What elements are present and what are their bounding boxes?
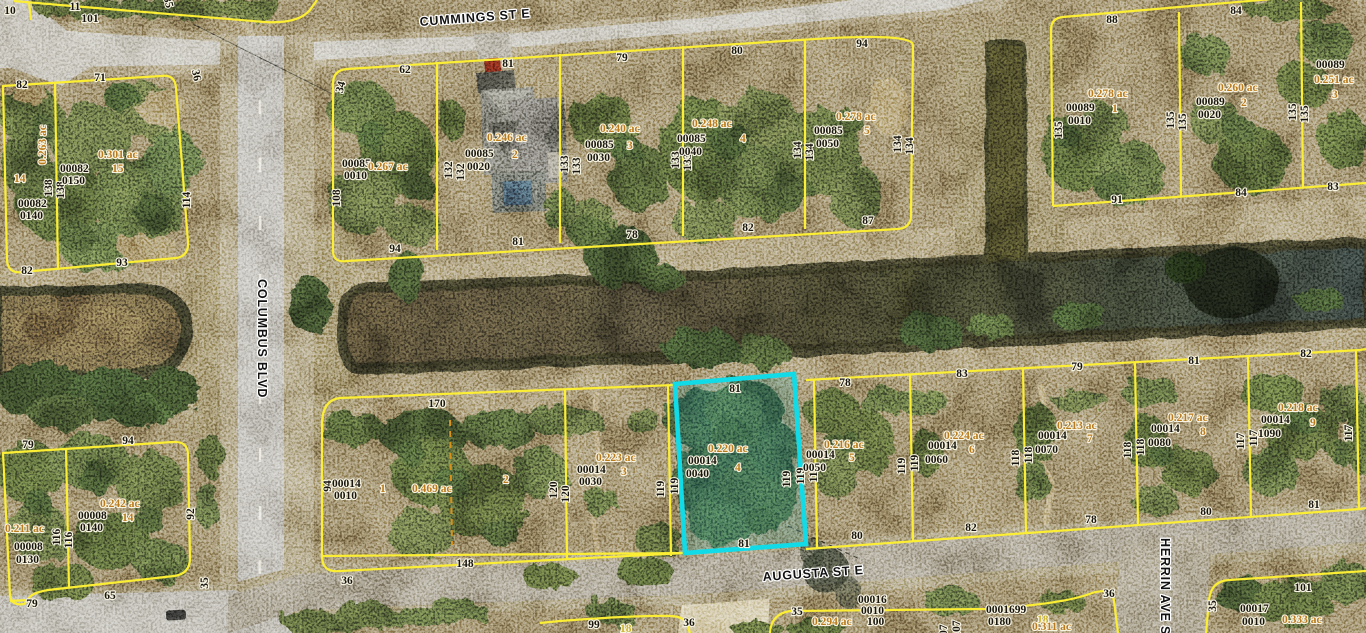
svg-text:82: 82 [16, 79, 28, 91]
svg-text:3: 3 [1332, 89, 1338, 101]
svg-text:78: 78 [626, 229, 638, 241]
svg-text:0150: 0150 [62, 175, 85, 187]
svg-text:36: 36 [341, 575, 353, 587]
svg-text:83: 83 [1327, 181, 1339, 193]
svg-text:15: 15 [112, 163, 124, 175]
svg-text:0.311 ac: 0.311 ac [1032, 621, 1071, 633]
svg-text:135: 135 [1053, 121, 1065, 139]
svg-text:6: 6 [969, 444, 975, 456]
svg-text:87: 87 [862, 215, 874, 227]
svg-text:81: 81 [1308, 499, 1320, 511]
svg-text:101: 101 [81, 13, 99, 25]
svg-text:00014: 00014 [806, 449, 835, 461]
svg-text:00089: 00089 [1316, 59, 1345, 71]
svg-text:118: 118 [1135, 438, 1147, 455]
svg-text:81: 81 [502, 58, 514, 70]
svg-text:36: 36 [683, 617, 695, 629]
svg-text:5: 5 [864, 125, 870, 137]
svg-text:4: 4 [735, 462, 741, 474]
svg-text:0050: 0050 [803, 462, 826, 474]
svg-text:65: 65 [104, 590, 116, 602]
svg-text:00008: 00008 [78, 510, 107, 522]
svg-text:00085: 00085 [585, 139, 614, 151]
svg-text:00085: 00085 [342, 158, 371, 170]
svg-text:2: 2 [503, 474, 509, 486]
svg-text:0.211 ac: 0.211 ac [5, 523, 44, 535]
svg-text:94: 94 [122, 435, 134, 447]
svg-text:5: 5 [849, 452, 855, 464]
svg-text:0010: 0010 [1242, 616, 1265, 628]
svg-text:132: 132 [455, 163, 467, 181]
svg-text:0.294 ac: 0.294 ac [812, 616, 852, 628]
svg-text:107: 107 [938, 624, 950, 633]
svg-text:0010: 0010 [344, 170, 367, 182]
svg-text:0001699: 0001699 [986, 604, 1027, 616]
svg-text:00017: 00017 [1240, 603, 1269, 615]
svg-text:0010: 0010 [1068, 115, 1091, 127]
svg-text:116: 116 [63, 531, 75, 548]
svg-text:83: 83 [956, 368, 968, 380]
svg-text:3: 3 [627, 140, 633, 152]
svg-text:1: 1 [1112, 103, 1118, 115]
svg-text:14: 14 [122, 512, 134, 524]
svg-text:114: 114 [181, 191, 193, 208]
svg-text:79: 79 [616, 52, 628, 64]
svg-text:3: 3 [621, 466, 627, 478]
svg-text:0040: 0040 [679, 146, 702, 158]
svg-text:0050: 0050 [816, 138, 839, 150]
svg-text:0080: 0080 [1148, 437, 1171, 449]
svg-text:118: 118 [1023, 446, 1035, 463]
svg-text:00085: 00085 [814, 125, 843, 137]
svg-text:2: 2 [1241, 97, 1247, 109]
svg-text:00082: 00082 [60, 163, 89, 175]
svg-text:0.246 ac: 0.246 ac [487, 132, 527, 144]
svg-text:82: 82 [21, 265, 33, 277]
svg-text:0060: 0060 [925, 454, 948, 466]
svg-text:117: 117 [1235, 432, 1247, 449]
svg-text:0.333 ac: 0.333 ac [1282, 614, 1322, 626]
svg-text:80: 80 [851, 530, 863, 542]
svg-text:10: 10 [4, 5, 16, 17]
svg-text:14: 14 [14, 173, 26, 185]
svg-text:81: 81 [1188, 355, 1200, 367]
svg-text:82: 82 [965, 522, 977, 534]
svg-text:80: 80 [1200, 506, 1212, 518]
svg-text:81: 81 [512, 236, 524, 248]
svg-text:107: 107 [951, 620, 963, 633]
svg-text:78: 78 [839, 377, 851, 389]
svg-text:138: 138 [43, 179, 55, 197]
svg-text:117: 117 [1343, 424, 1355, 441]
svg-text:79: 79 [1071, 361, 1083, 373]
svg-text:0.251 ac: 0.251 ac [1314, 74, 1354, 86]
svg-text:00014: 00014 [1038, 430, 1067, 442]
svg-text:119: 119 [655, 480, 667, 497]
svg-text:0070: 0070 [1035, 444, 1058, 456]
svg-text:0040: 0040 [686, 468, 709, 480]
svg-text:82: 82 [1300, 348, 1312, 360]
svg-text:1: 1 [380, 483, 386, 495]
svg-text:9: 9 [1310, 417, 1316, 429]
svg-text:94: 94 [389, 243, 401, 255]
svg-text:00085: 00085 [465, 148, 494, 160]
svg-text:91: 91 [1111, 194, 1123, 206]
svg-text:99: 99 [588, 619, 600, 631]
svg-text:00085: 00085 [677, 133, 706, 145]
svg-text:81: 81 [738, 538, 750, 550]
svg-text:133: 133 [559, 155, 571, 173]
svg-text:36: 36 [1103, 588, 1115, 600]
svg-text:134: 134 [892, 135, 904, 153]
svg-text:132: 132 [443, 161, 455, 179]
svg-text:135: 135 [1287, 103, 1299, 121]
svg-text:79: 79 [22, 439, 34, 451]
svg-text:0180: 0180 [988, 616, 1011, 628]
svg-text:119: 119 [909, 454, 921, 471]
svg-text:133: 133 [571, 157, 583, 175]
svg-text:108: 108 [331, 189, 343, 207]
svg-text:119: 119 [669, 477, 681, 494]
svg-text:134: 134 [804, 143, 816, 161]
svg-text:62: 62 [399, 64, 411, 76]
svg-text:35: 35 [791, 606, 803, 618]
svg-text:0.263 ac: 0.263 ac [37, 125, 49, 165]
svg-text:0130: 0130 [16, 554, 39, 566]
svg-text:0140: 0140 [20, 210, 43, 222]
svg-text:135: 135 [1299, 105, 1311, 123]
svg-text:00014: 00014 [1261, 414, 1290, 426]
svg-text:92: 92 [185, 508, 197, 520]
svg-text:00082: 00082 [18, 198, 47, 210]
svg-text:0010: 0010 [334, 490, 357, 502]
svg-text:119: 119 [781, 470, 793, 487]
svg-text:170: 170 [428, 398, 446, 410]
svg-text:148: 148 [456, 558, 474, 570]
svg-text:71: 71 [94, 72, 106, 84]
svg-text:00014: 00014 [688, 455, 717, 467]
svg-text:35: 35 [199, 577, 211, 589]
svg-text:0.301 ac: 0.301 ac [98, 149, 138, 161]
svg-text:0.218 ac: 0.218 ac [1278, 402, 1318, 414]
svg-text:82: 82 [742, 222, 754, 234]
svg-text:00089: 00089 [1196, 96, 1225, 108]
svg-text:0030: 0030 [587, 152, 610, 164]
svg-text:0020: 0020 [1198, 109, 1221, 121]
svg-text:0.242 ac: 0.242 ac [100, 498, 140, 510]
svg-text:134: 134 [904, 137, 916, 155]
svg-text:00014: 00014 [332, 478, 361, 490]
svg-text:120: 120 [560, 485, 572, 503]
svg-text:4: 4 [740, 133, 746, 145]
svg-text:35: 35 [1207, 600, 1219, 612]
svg-text:78: 78 [1085, 514, 1097, 526]
svg-text:HERRIN AVE S: HERRIN AVE S [1158, 538, 1172, 633]
svg-text:00089: 00089 [1066, 102, 1095, 114]
svg-text:81: 81 [729, 383, 741, 395]
svg-text:94: 94 [856, 38, 868, 50]
svg-text:COLUMBUS BLVD: COLUMBUS BLVD [255, 279, 269, 398]
svg-text:120: 120 [548, 481, 560, 499]
svg-text:84: 84 [1230, 5, 1242, 17]
svg-text:84: 84 [1235, 187, 1247, 199]
svg-text:0.267 ac: 0.267 ac [368, 161, 408, 173]
svg-text:00014: 00014 [577, 464, 606, 476]
svg-text:0.248 ac: 0.248 ac [692, 118, 732, 130]
svg-text:101: 101 [1294, 582, 1312, 594]
svg-text:0.278 ac: 0.278 ac [1088, 88, 1128, 100]
svg-text:0140: 0140 [80, 522, 103, 534]
svg-text:135: 135 [1177, 113, 1189, 131]
svg-text:0.240 ac: 0.240 ac [600, 123, 640, 135]
svg-text:0.278 ac: 0.278 ac [836, 111, 876, 123]
svg-text:11: 11 [70, 1, 81, 13]
svg-text:88: 88 [1106, 14, 1118, 26]
svg-text:0.220 ac: 0.220 ac [708, 443, 748, 455]
svg-text:118: 118 [1122, 441, 1134, 458]
svg-text:135: 135 [1165, 111, 1177, 129]
svg-text:0020: 0020 [467, 161, 490, 173]
svg-text:119: 119 [896, 457, 908, 474]
svg-text:0.260 ac: 0.260 ac [1218, 82, 1258, 94]
svg-text:118: 118 [1010, 449, 1022, 466]
svg-text:1090: 1090 [1258, 428, 1281, 440]
svg-text:18: 18 [620, 623, 632, 633]
svg-text:100: 100 [867, 616, 885, 628]
svg-text:80: 80 [731, 45, 743, 57]
svg-text:0.223 ac: 0.223 ac [596, 452, 636, 464]
svg-text:0030: 0030 [579, 476, 602, 488]
svg-text:134: 134 [792, 141, 804, 159]
svg-text:93: 93 [116, 257, 128, 269]
svg-text:79: 79 [26, 598, 38, 610]
svg-text:00008: 00008 [14, 541, 43, 553]
svg-text:00014: 00014 [928, 440, 957, 452]
svg-text:116: 116 [51, 528, 63, 545]
svg-text:0.469 ac: 0.469 ac [412, 483, 452, 495]
svg-text:2: 2 [512, 149, 518, 161]
svg-text:8: 8 [1200, 426, 1206, 438]
svg-text:7: 7 [1087, 433, 1093, 445]
svg-text:00014: 00014 [1151, 423, 1180, 435]
